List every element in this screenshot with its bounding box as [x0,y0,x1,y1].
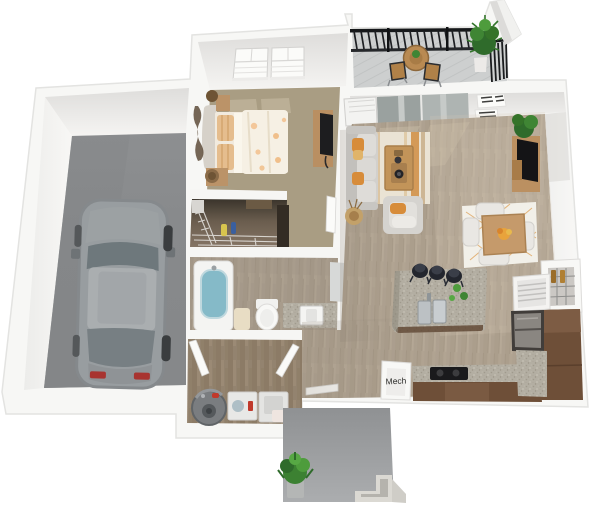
svg-text:Mech: Mech [385,375,407,386]
